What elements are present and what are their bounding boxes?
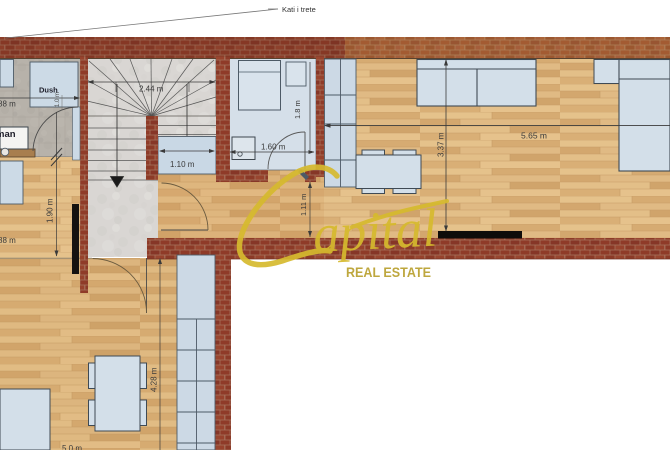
svg-text:4.28 m: 4.28 m [150, 367, 159, 392]
svg-text:1.90 m: 1.90 m [46, 198, 55, 223]
svg-text:REAL ESTATE: REAL ESTATE [346, 264, 431, 280]
svg-text:88 m: 88 m [0, 100, 16, 109]
svg-text:1.11 m: 1.11 m [299, 194, 308, 216]
svg-text:2.44 m: 2.44 m [139, 85, 164, 94]
svg-text:5.0 m: 5.0 m [62, 444, 82, 450]
svg-text:88 m: 88 m [0, 236, 16, 245]
svg-text:1.8 m: 1.8 m [293, 100, 302, 119]
svg-text:5.65 m: 5.65 m [521, 131, 547, 141]
svg-text:Dush: Dush [39, 86, 58, 95]
svg-text:Kati i trete: Kati i trete [282, 5, 316, 14]
svg-text:3.37 m: 3.37 m [437, 132, 446, 157]
svg-text:1.10 m: 1.10 m [170, 160, 195, 169]
svg-text:1.60 m: 1.60 m [261, 143, 286, 152]
svg-text:man: man [0, 129, 16, 140]
